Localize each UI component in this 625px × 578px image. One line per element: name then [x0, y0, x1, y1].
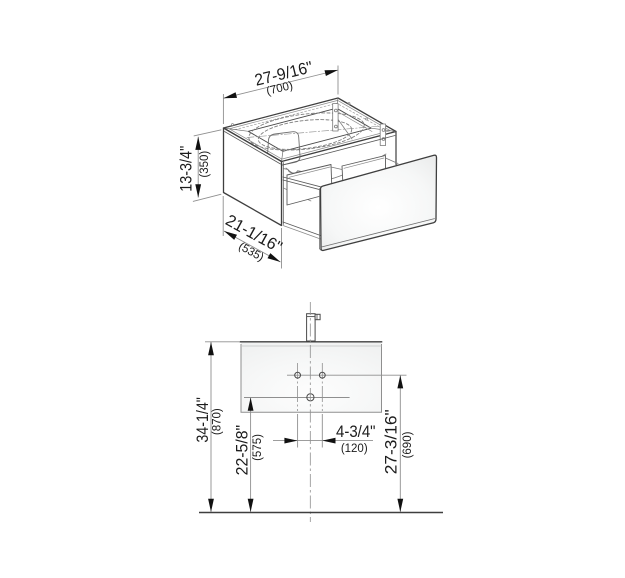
svg-text:22-5/8": 22-5/8": [234, 425, 252, 476]
svg-text:(690): (690): [402, 431, 414, 458]
svg-text:(120): (120): [341, 443, 368, 455]
svg-text:4-3/4": 4-3/4": [336, 423, 376, 441]
svg-text:(575): (575): [252, 434, 264, 461]
svg-text:13-3/4": 13-3/4": [178, 146, 196, 192]
svg-text:27-3/16": 27-3/16": [383, 409, 401, 474]
svg-text:(350): (350): [199, 151, 211, 178]
svg-text:34-1/4": 34-1/4": [194, 397, 212, 443]
svg-text:(870): (870): [212, 408, 224, 435]
